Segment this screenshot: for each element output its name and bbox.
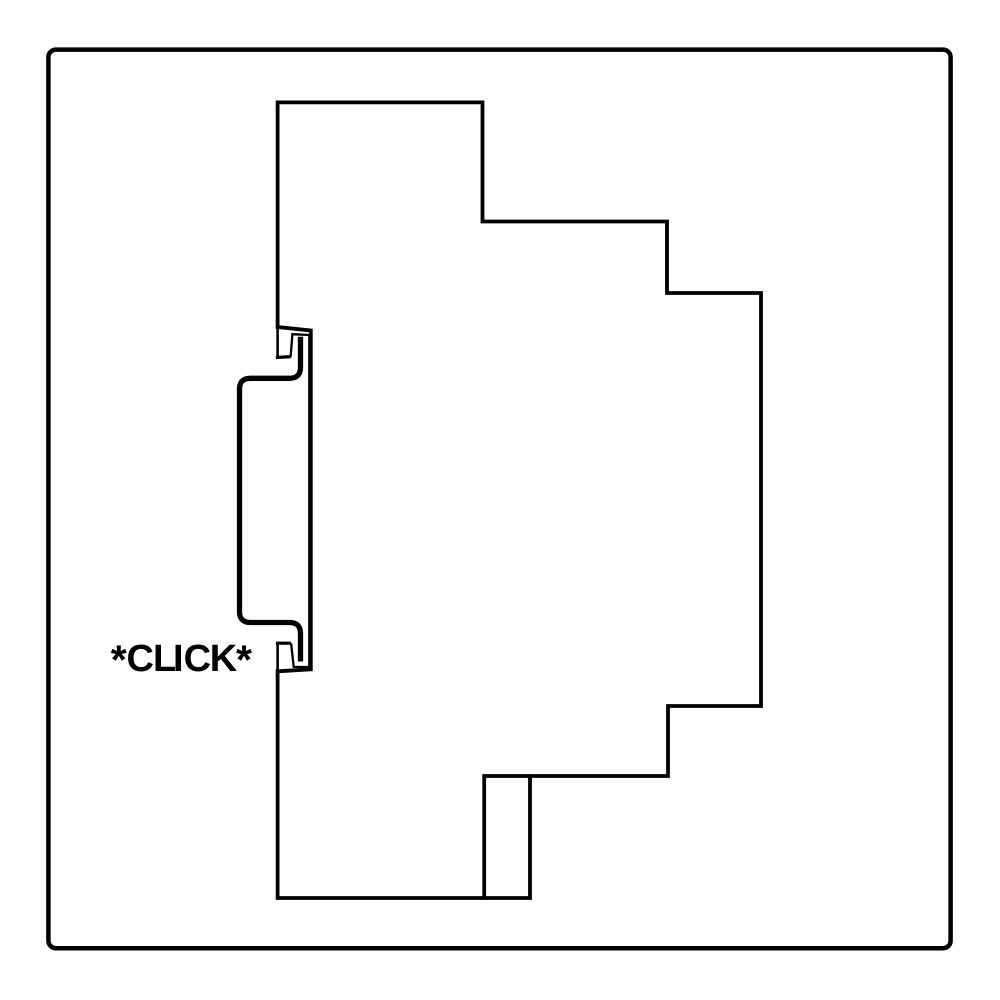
svg-text:*CLICK*: *CLICK* <box>111 637 252 683</box>
